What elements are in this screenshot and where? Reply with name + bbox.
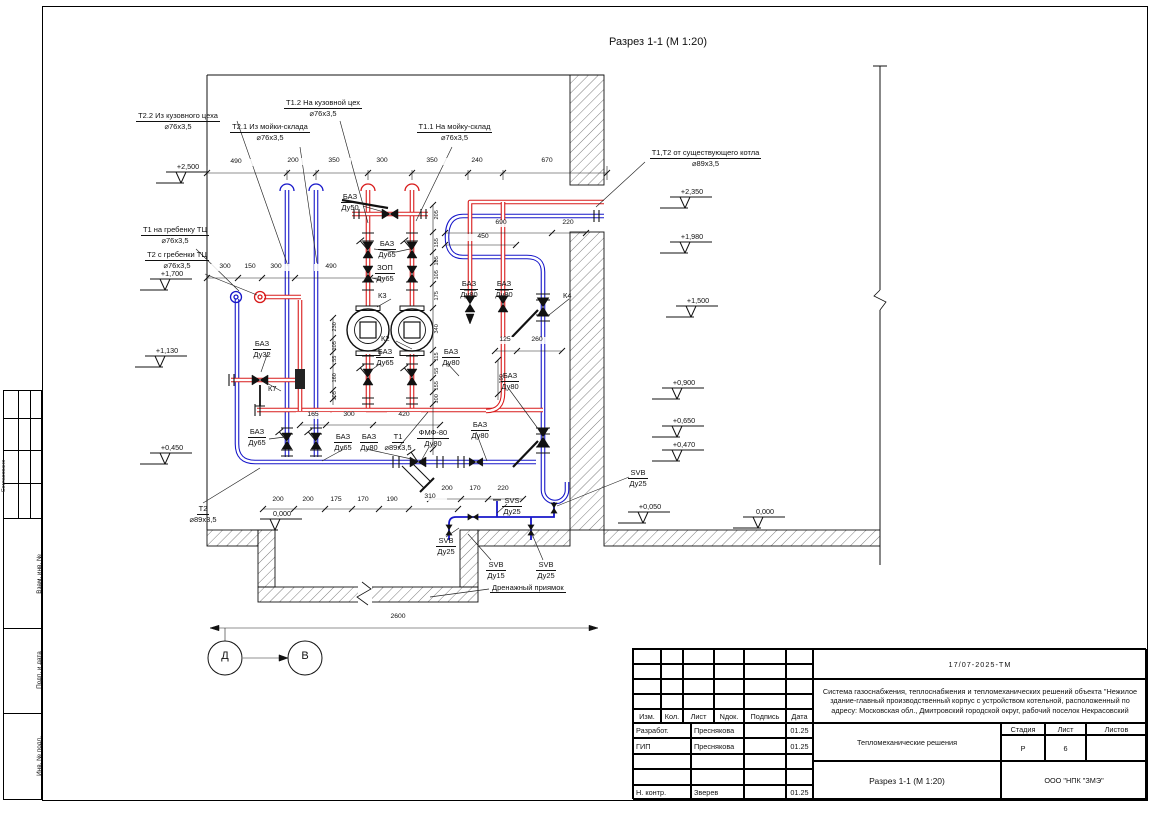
tb-row-name — [691, 754, 744, 769]
tb-row-name: Зверев — [691, 785, 744, 800]
tb-row-role — [633, 754, 691, 769]
tb-header-data: Дата — [786, 709, 813, 723]
tb-row-date — [786, 754, 813, 769]
tb-row-sign — [744, 738, 786, 754]
tb-row-role — [633, 769, 691, 785]
view-reference: Разрез 1-1 (М 1:20) — [813, 761, 1001, 800]
tb-row-date: 01.25 — [786, 738, 813, 754]
tb-row-sign — [744, 723, 786, 738]
stage-label: Стадия — [1001, 723, 1045, 735]
stage-value: Р — [1001, 735, 1045, 761]
tb-header-list: Лист — [683, 709, 714, 723]
sidebar-cell-label: Подп. и дата — [36, 625, 43, 715]
tb-row-date — [786, 769, 813, 785]
sheets-value — [1086, 735, 1147, 761]
tb-row-name — [691, 769, 744, 785]
tb-row-role: Разработ. — [633, 723, 691, 738]
tb-header-podpis: Подпись — [744, 709, 786, 723]
sheets-label: Листов — [1086, 723, 1147, 735]
drawing-sheet: Разрез 1-1 (М 1:20) Т2.2 Из кузовного це… — [0, 0, 1152, 813]
document-number: 17/07-2025-ТМ — [813, 649, 1147, 679]
tb-row-date: 01.25 — [786, 723, 813, 738]
tb-header-izm: Изм. — [633, 709, 661, 723]
tb-row-role: ГИП — [633, 738, 691, 754]
approval-stamp-text: Согласовано — [1, 436, 7, 516]
tb-header-kol: Кол. — [661, 709, 683, 723]
company-name: ООО "НПК "ЗМЭ" — [1001, 761, 1147, 800]
tb-row-sign — [744, 769, 786, 785]
tb-row-name: Преснякова — [691, 738, 744, 754]
sheet-value: 6 — [1045, 735, 1086, 761]
tb-row-role: Н. контр. — [633, 785, 691, 800]
tb-row-name: Преснякова — [691, 723, 744, 738]
tb-row-date: 01.25 — [786, 785, 813, 800]
sheet-label: Лист — [1045, 723, 1086, 735]
title-block: Изм. Кол. Лист Nдок. Подпись Дата Разраб… — [632, 648, 1146, 799]
sidebar-cell-label: Инв. № подл. — [36, 711, 43, 801]
project-description: Система газоснабжения, теплоснабжения и … — [813, 679, 1147, 723]
tb-row-sign — [744, 785, 786, 800]
sidebar-cell-label: Взам. инв. № — [36, 529, 43, 619]
project-title: Тепломеханические решения — [813, 723, 1001, 761]
tb-row-sign — [744, 754, 786, 769]
tb-header-ndok: Nдок. — [714, 709, 744, 723]
